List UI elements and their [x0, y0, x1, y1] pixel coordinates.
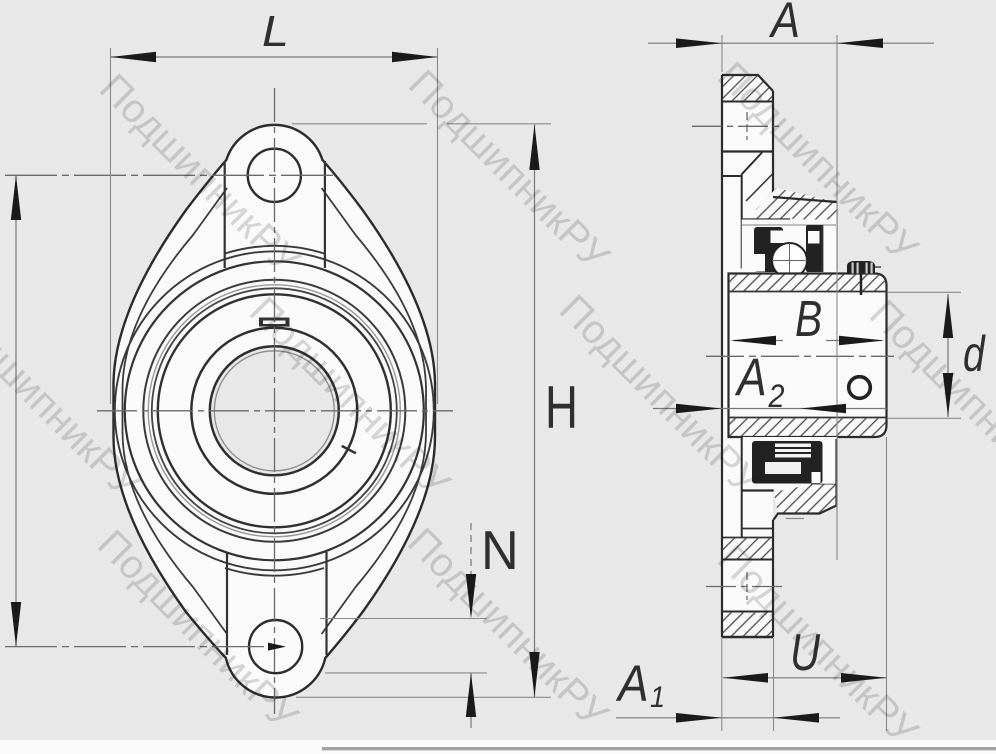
svg-text:B: B	[795, 290, 822, 347]
svg-text:A: A	[734, 348, 766, 406]
svg-text:H: H	[545, 375, 578, 441]
svg-text:A: A	[768, 0, 800, 48]
svg-text:L: L	[262, 6, 289, 55]
svg-text:A: A	[615, 656, 648, 713]
svg-text:N: N	[481, 520, 519, 582]
svg-text:2: 2	[768, 379, 785, 415]
svg-text:1: 1	[650, 681, 665, 715]
